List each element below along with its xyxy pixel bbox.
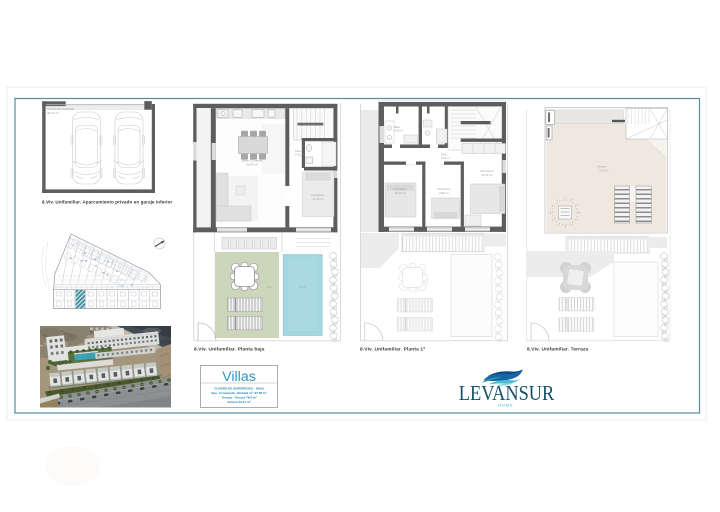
svg-text:Sotano 50.31 m²: Sotano 50.31 m²	[227, 400, 250, 404]
svg-text:8.99 m²: 8.99 m²	[439, 191, 449, 195]
svg-text:LEVANSUR: LEVANSUR	[459, 381, 555, 405]
svg-text:Paso: Paso	[441, 153, 447, 157]
svg-text:10.14 m²: 10.14 m²	[394, 191, 405, 195]
svg-text:Villas: Villas	[222, 369, 256, 385]
svg-text:Sup. Construida - Builded m²:: Sup. Construida - Builded m²: 97.58 m²	[211, 391, 266, 395]
svg-text:78.8 m²: 78.8 m²	[599, 169, 609, 173]
svg-text:8.62: 8.62	[267, 285, 273, 289]
svg-text:12.10 m²: 12.10 m²	[312, 197, 323, 201]
svg-text:CUADRO DE SUPERFICIES - 50%S: CUADRO DE SUPERFICIES - 50%S	[214, 386, 264, 390]
svg-text:25.10: 25.10	[299, 285, 306, 289]
svg-text:4.05 m²: 4.05 m²	[394, 130, 403, 133]
svg-text:22.04 m²: 22.04 m²	[246, 163, 258, 167]
svg-text:HOME: HOME	[498, 403, 514, 407]
svg-text:8.Viv. Unifamiliar. Terraza: 8.Viv. Unifamiliar. Terraza	[527, 347, 589, 353]
svg-text:1.81 m²: 1.81 m²	[295, 153, 304, 157]
svg-text:30.71 m²: 30.71 m²	[47, 111, 59, 115]
svg-text:8.Viv. Unifamiliar. Aparcamien: 8.Viv. Unifamiliar. Aparcamiento privado…	[42, 200, 173, 205]
svg-text:6.10 m²: 6.10 m²	[441, 156, 450, 160]
svg-text:Paso: Paso	[295, 149, 301, 153]
svg-text:Terraza - Terrace 78.8 m²: Terraza - Terrace 78.8 m²	[222, 395, 257, 399]
svg-text:8.Viv. Unifamiliar. Planta baj: 8.Viv. Unifamiliar. Planta baja	[194, 347, 265, 353]
svg-text:12.24 m²: 12.24 m²	[481, 173, 492, 177]
svg-text:8.Viv. Unifamiliar. Planta 1ª: 8.Viv. Unifamiliar. Planta 1ª	[360, 347, 425, 353]
